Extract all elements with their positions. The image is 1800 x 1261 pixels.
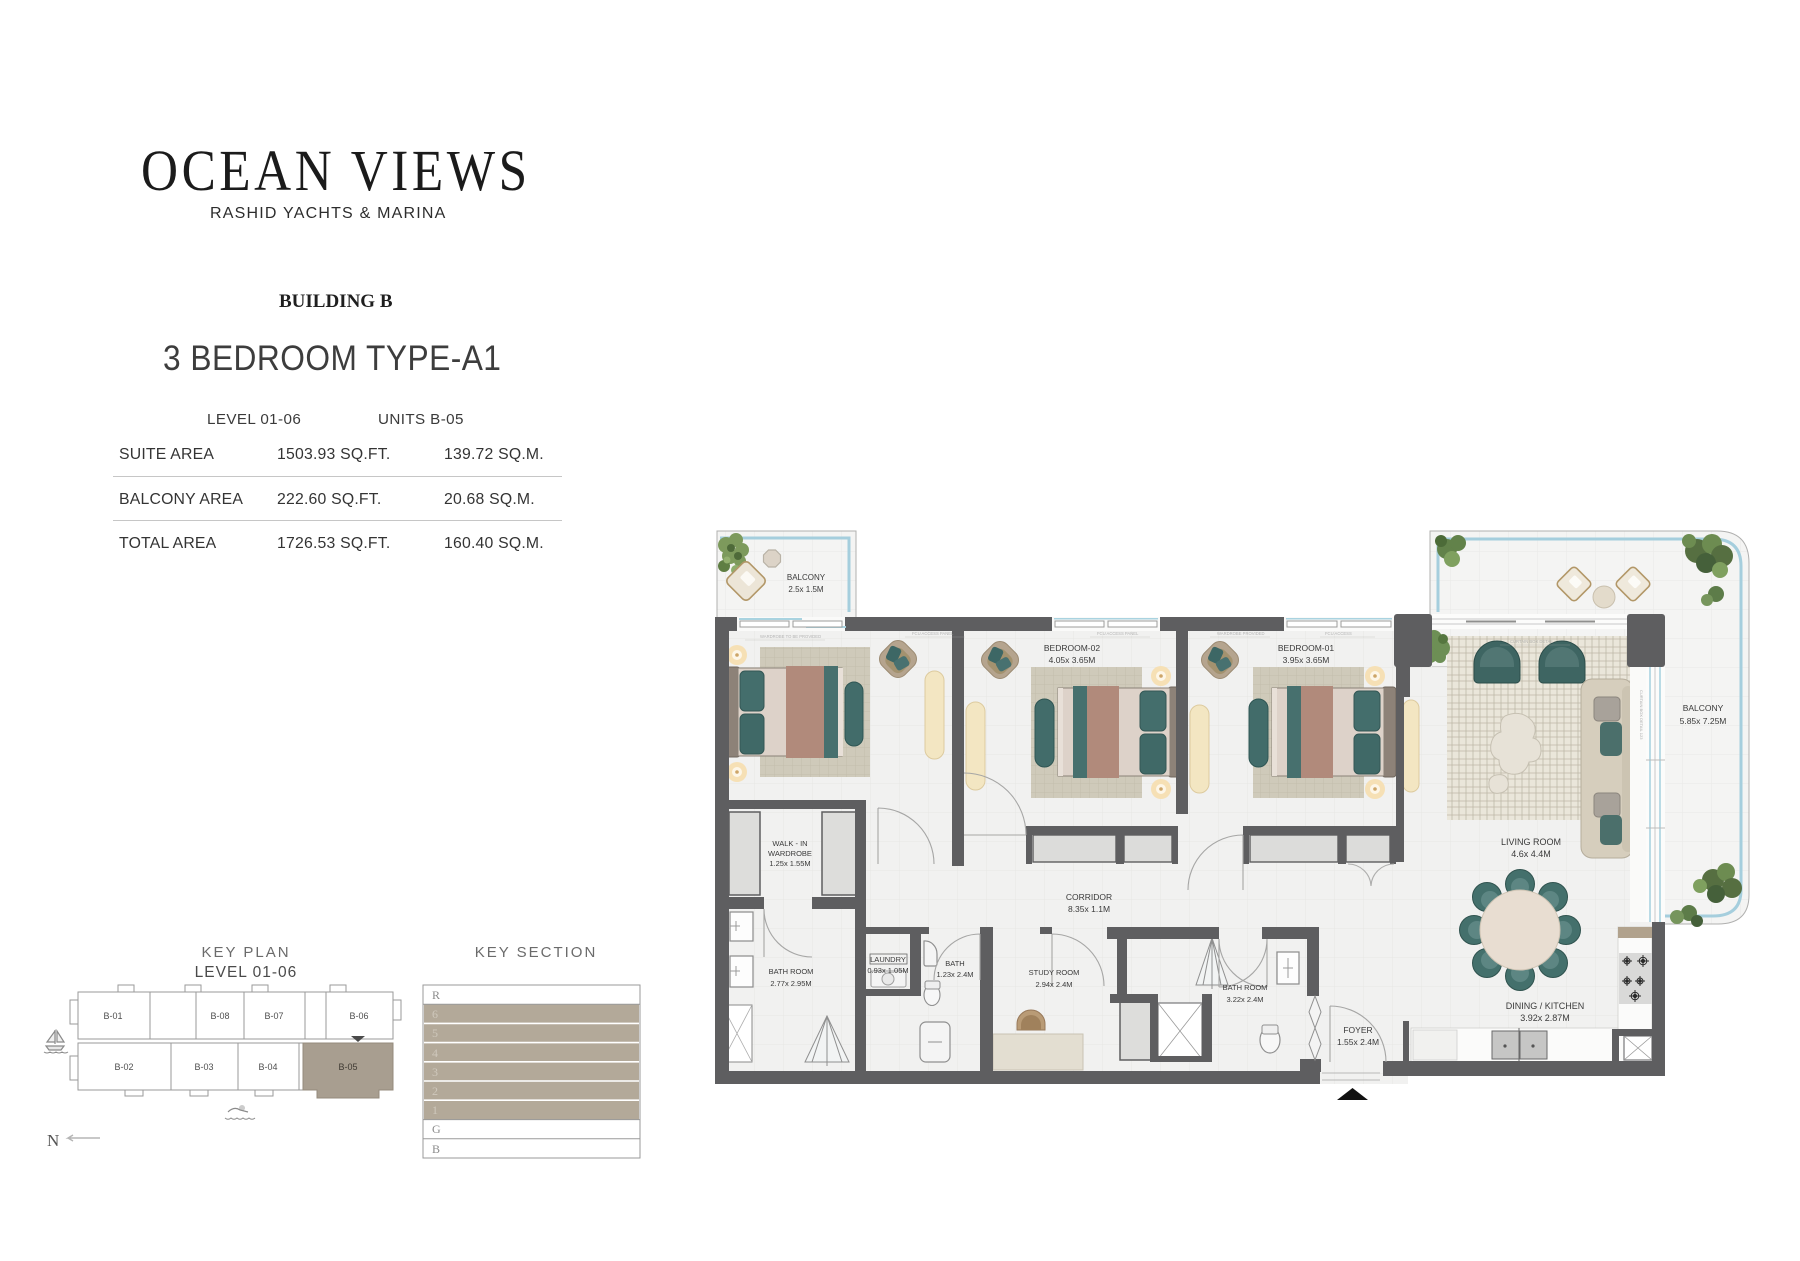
svg-text:CORRIDOR: CORRIDOR [1066,892,1112,902]
svg-text:B-02: B-02 [114,1062,133,1072]
svg-text:BALCONY: BALCONY [1683,703,1724,713]
svg-text:FOYER: FOYER [1343,1025,1372,1035]
svg-text:CURTAIN BOX DETAIL 123: CURTAIN BOX DETAIL 123 [1639,690,1644,740]
svg-text:LAUNDRY: LAUNDRY [870,955,906,964]
svg-text:WARDROBE PROVIDED: WARDROBE PROVIDED [1217,631,1265,636]
svg-text:4.05x 3.65M: 4.05x 3.65M [1049,655,1096,665]
svg-text:1.23x 2.4M: 1.23x 2.4M [936,970,973,979]
svg-text:3: 3 [432,1065,438,1079]
svg-text:B-07: B-07 [264,1011,283,1021]
svg-text:STUDY ROOM: STUDY ROOM [1029,968,1080,977]
svg-text:B-05: B-05 [338,1062,357,1072]
svg-text:2.77x 2.95M: 2.77x 2.95M [770,979,811,988]
svg-text:B-03: B-03 [194,1062,213,1072]
svg-text:6: 6 [432,1007,438,1021]
svg-text:2.94x 2.4M: 2.94x 2.4M [1035,980,1072,989]
svg-text:KEY SECTION: KEY SECTION [475,944,598,961]
svg-text:B-01: B-01 [103,1011,122,1021]
svg-text:2: 2 [432,1084,438,1098]
svg-text:KEY PLAN: KEY PLAN [201,944,290,961]
svg-text:3.92x 2.87M: 3.92x 2.87M [1520,1013,1570,1023]
svg-text:FCU ACCESS PANEL: FCU ACCESS PANEL [1097,631,1139,636]
svg-text:B-08: B-08 [210,1011,229,1021]
svg-text:BEDROOM-01: BEDROOM-01 [1278,643,1334,653]
svg-text:3.95x 3.65M: 3.95x 3.65M [1283,655,1330,665]
svg-text:WARDROBE TO BE PROVIDED: WARDROBE TO BE PROVIDED [760,634,821,639]
svg-text:2.5x 1.5M: 2.5x 1.5M [788,585,823,594]
svg-text:LIVING ROOM: LIVING ROOM [1501,837,1561,847]
svg-text:FCU ACCESS: FCU ACCESS [1325,631,1352,636]
svg-text:N: N [47,1131,59,1150]
svg-text:5: 5 [432,1026,438,1040]
svg-text:B-04: B-04 [258,1062,277,1072]
svg-text:3.22x 2.4M: 3.22x 2.4M [1226,995,1263,1004]
svg-text:BATH: BATH [945,959,964,968]
svg-text:CURTAIN BOX DETAIL: CURTAIN BOX DETAIL [1510,639,1554,644]
svg-text:1.25x 1.55M: 1.25x 1.55M [769,859,810,868]
svg-text:BATH ROOM: BATH ROOM [1223,983,1268,992]
svg-text:G: G [432,1122,441,1136]
svg-text:8.35x 1.1M: 8.35x 1.1M [1068,904,1110,914]
svg-text:LEVEL 01-06: LEVEL 01-06 [195,964,298,981]
svg-text:BEDROOM-02: BEDROOM-02 [1044,643,1100,653]
svg-text:BATH ROOM: BATH ROOM [769,967,814,976]
svg-text:4.6x 4.4M: 4.6x 4.4M [1511,849,1551,859]
svg-text:B: B [432,1142,440,1156]
svg-text:4: 4 [432,1046,438,1060]
svg-text:R: R [432,988,440,1002]
svg-text:BALCONY: BALCONY [787,573,826,582]
svg-text:FCU ACCESS PANEL: FCU ACCESS PANEL [912,631,954,636]
svg-text:5.85x 7.25M: 5.85x 7.25M [1680,716,1727,726]
svg-text:1: 1 [432,1103,438,1117]
svg-text:WARDROBE: WARDROBE [768,849,812,858]
svg-text:B-06: B-06 [349,1011,368,1021]
svg-text:DINING / KITCHEN: DINING / KITCHEN [1506,1001,1585,1011]
svg-text:WALK - IN: WALK - IN [772,839,807,848]
svg-text:0.93x 1.05M: 0.93x 1.05M [867,966,908,975]
svg-text:1.55x 2.4M: 1.55x 2.4M [1337,1037,1379,1047]
